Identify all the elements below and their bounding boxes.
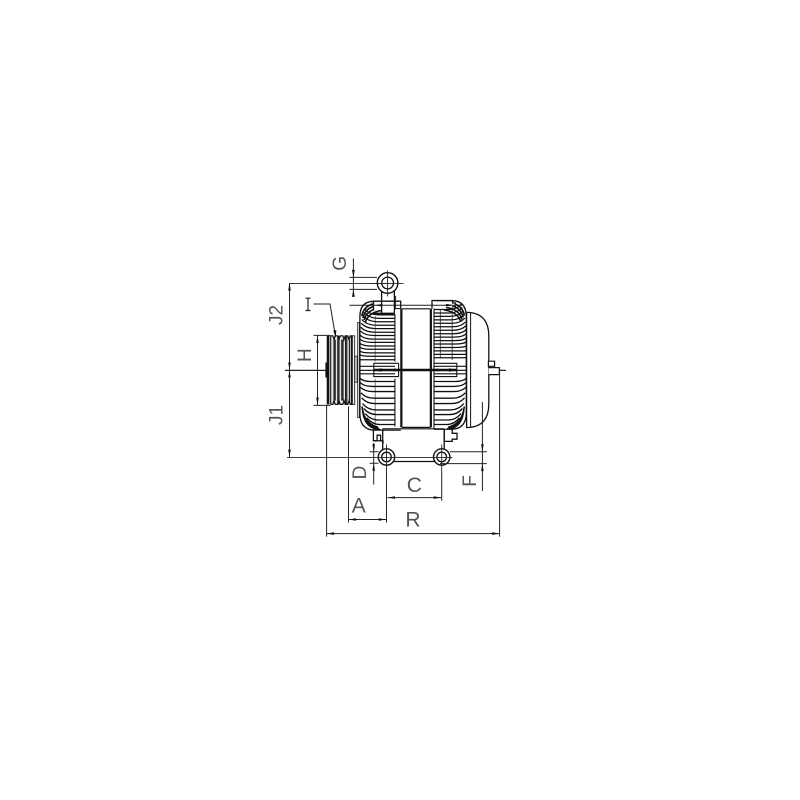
svg-text:D: D [350,466,371,480]
svg-text:F: F [460,475,481,487]
svg-text:H: H [295,348,316,362]
svg-text:C: C [407,474,422,497]
svg-text:J1: J1 [267,405,288,425]
svg-text:R: R [405,508,420,531]
svg-text:G: G [330,256,351,271]
svg-text:A: A [352,495,366,518]
svg-text:J2: J2 [267,305,288,325]
